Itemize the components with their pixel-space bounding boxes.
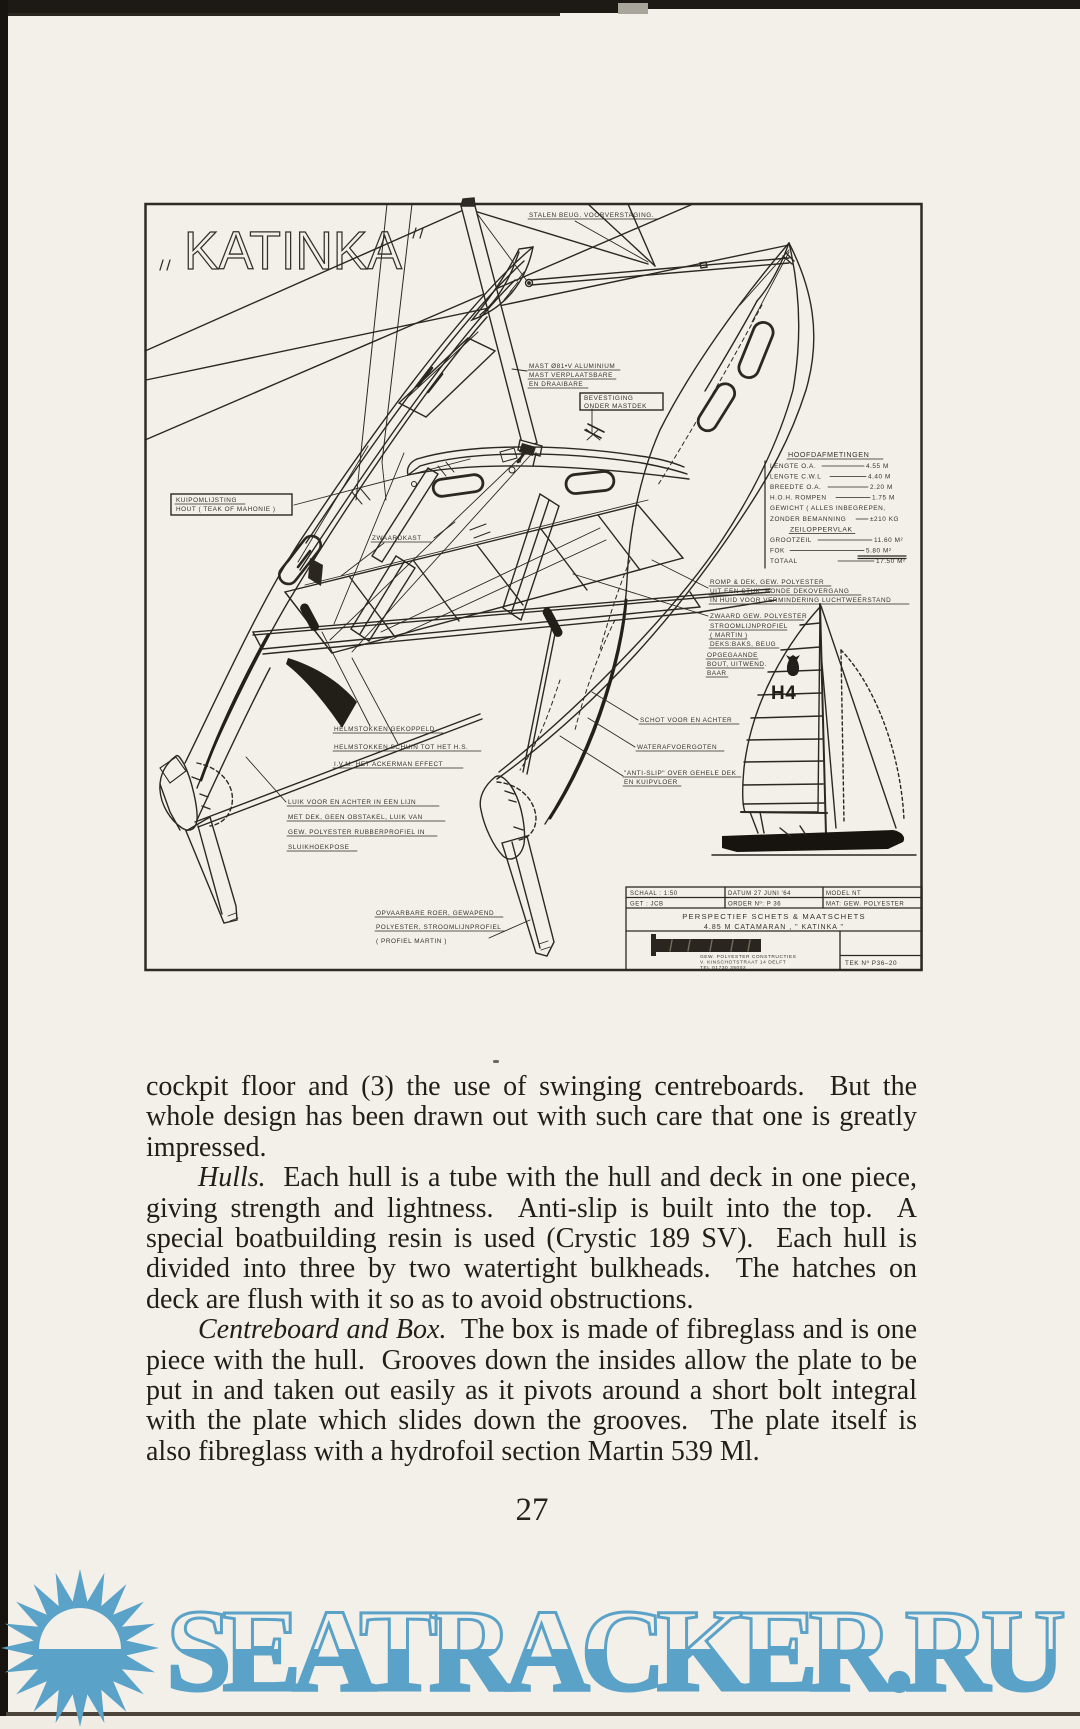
svg-text:DATUM 27 JUNI '64: DATUM 27 JUNI '64: [728, 891, 791, 897]
svg-text:MAT: GEW. POLYESTER: MAT: GEW. POLYESTER: [826, 902, 904, 908]
svg-text:DEKS:BAKS, BEUG: DEKS:BAKS, BEUG: [710, 641, 776, 648]
svg-text:11.60 M²: 11.60 M²: [874, 537, 903, 544]
svg-text:4.55 M: 4.55 M: [866, 463, 889, 470]
svg-text:WATERAFVOERGOTEN: WATERAFVOERGOTEN: [637, 744, 717, 751]
svg-text:HOUT ( TEAK OF MAHONIE ): HOUT ( TEAK OF MAHONIE ): [176, 506, 276, 513]
svg-text:( MARTIN ): ( MARTIN ): [710, 632, 748, 639]
svg-text:LUIK VOOR EN ACHTER IN EEN LIJ: LUIK VOOR EN ACHTER IN EEN LIJN: [288, 799, 416, 806]
svg-text:ROMP & DEK, GEW. POLYESTER: ROMP & DEK, GEW. POLYESTER: [710, 579, 824, 586]
svg-text:V. KINSCHOTSTRAAT 14 DELFT: V. KINSCHOTSTRAAT 14 DELFT: [700, 960, 786, 966]
svg-text:GEW. POLYESTER CONSTRUCTIES: GEW. POLYESTER CONSTRUCTIES: [700, 954, 796, 960]
svg-text:4.85 M CATAMARAN , " KATINKA: 4.85 M CATAMARAN , " KATINKA ": [704, 924, 844, 931]
svg-text:TOTAAL: TOTAAL: [770, 558, 798, 565]
svg-text:ONDER MASTDEK: ONDER MASTDEK: [584, 403, 647, 410]
svg-text:SCHOT VOOR EN ACHTER: SCHOT VOOR EN ACHTER: [640, 717, 732, 724]
svg-text:PERSPECTIEF SCHETS & MAATSCHET: PERSPECTIEF SCHETS & MAATSCHETS: [682, 912, 865, 921]
svg-text:4.40 M: 4.40 M: [868, 474, 891, 481]
svg-text:OPGEGAANDE: OPGEGAANDE: [707, 652, 758, 659]
svg-text:IN HUID VOOR VERMINDERING LUC: IN HUID VOOR VERMINDERING LUCHTWEERSTAND: [710, 597, 891, 604]
svg-text:±210 KG: ±210 KG: [870, 516, 899, 523]
svg-text:1.75 M: 1.75 M: [872, 495, 895, 502]
svg-text:BREEDTE O.A.: BREEDTE O.A.: [770, 484, 821, 491]
svg-text:UIT EEN STUK, RONDE DEKOVERGAN: UIT EEN STUK, RONDE DEKOVERGANG: [710, 588, 849, 595]
svg-text:STROOMLIJNPROFIEL: STROOMLIJNPROFIEL: [710, 623, 788, 630]
svg-text:2.20 M: 2.20 M: [870, 484, 893, 491]
svg-text:MAST Ø81•V ALUMINIUM: MAST Ø81•V ALUMINIUM: [529, 363, 615, 370]
svg-text:"ANTI-SLIP" OVER GEHELE DEK: "ANTI-SLIP" OVER GEHELE DEK: [624, 770, 737, 777]
svg-text:MODEL NT: MODEL NT: [826, 891, 861, 897]
svg-text:SLUIKHOEKPOSE: SLUIKHOEKPOSE: [288, 844, 350, 851]
svg-text:ZWAARD GEW. POLYESTER: ZWAARD GEW. POLYESTER: [710, 613, 807, 620]
svg-text:GEWICHT ( ALLES INBEGREPEN,: GEWICHT ( ALLES INBEGREPEN,: [770, 505, 886, 512]
svg-text:I.V.M. HET ACKERMAN EFFECT: I.V.M. HET ACKERMAN EFFECT: [334, 761, 443, 768]
svg-text:TEL 01730 35002: TEL 01730 35002: [700, 965, 746, 971]
svg-text:GEW. POLYESTER RUBBERPROFIEL I: GEW. POLYESTER RUBBERPROFIEL IN: [288, 829, 425, 836]
svg-text:HOOFDAFMETINGEN: HOOFDAFMETINGEN: [788, 450, 869, 459]
svg-text:ZWAARDKAST: ZWAARDKAST: [372, 535, 422, 542]
svg-text:BOUT, UITWEND.: BOUT, UITWEND.: [707, 661, 767, 668]
svg-text:GROOTZEIL: GROOTZEIL: [770, 537, 812, 544]
svg-text:MET DEK, GEEN OBSTAKEL, LUIK V: MET DEK, GEEN OBSTAKEL, LUIK VAN: [288, 814, 423, 821]
svg-text:TEK Nº P36–20: TEK Nº P36–20: [845, 960, 897, 967]
svg-text:EN DRAAIBARE: EN DRAAIBARE: [529, 381, 583, 388]
svg-text:ZEILOPPERVLAK: ZEILOPPERVLAK: [790, 527, 853, 534]
svg-text:ORDER Nº: P 36: ORDER Nº: P 36: [728, 901, 781, 908]
svg-text:ZONDER BEMANNING: ZONDER BEMANNING: [770, 516, 846, 523]
svg-text:LENGTE O.A.: LENGTE O.A.: [770, 463, 816, 470]
svg-text:H.O.H. ROMPEN: H.O.H. ROMPEN: [770, 495, 827, 502]
svg-text:BEVESTIGING: BEVESTIGING: [584, 395, 633, 402]
svg-text:LENGTE C.W.L: LENGTE C.W.L: [770, 474, 821, 481]
svg-text:H4: H4: [771, 683, 796, 704]
svg-text:STALEN BEUG. VOORVERSTAGING.: STALEN BEUG. VOORVERSTAGING.: [529, 212, 654, 219]
svg-text:HELMSTOKKEN GEKOPPELD: HELMSTOKKEN GEKOPPELD: [334, 726, 435, 733]
svg-text:5.80 M²: 5.80 M²: [866, 548, 892, 555]
svg-text:SCHAAL : 1:50: SCHAAL : 1:50: [630, 891, 678, 897]
svg-text:EN KUIPVLOER: EN KUIPVLOER: [624, 779, 678, 786]
svg-text:( PROFIEL MARTIN ): ( PROFIEL MARTIN ): [376, 938, 447, 945]
svg-text:MAST VERPLAATSBARE: MAST VERPLAATSBARE: [529, 372, 613, 379]
svg-text:GET : JCB: GET : JCB: [630, 902, 664, 908]
svg-text:BAAR: BAAR: [707, 670, 727, 677]
svg-text:HELMSTOKKEN SCHUIN TOT HET H.S: HELMSTOKKEN SCHUIN TOT HET H.S.: [334, 744, 468, 751]
svg-text:KUIPOMLIJSTING: KUIPOMLIJSTING: [176, 497, 237, 504]
svg-text:OPVAARBARE ROER, GEWAPEND: OPVAARBARE ROER, GEWAPEND: [376, 910, 494, 917]
svg-text:POLYESTER, STROOMLIJNPROFIEL: POLYESTER, STROOMLIJNPROFIEL: [376, 924, 501, 931]
svg-text:FOK: FOK: [770, 548, 785, 555]
